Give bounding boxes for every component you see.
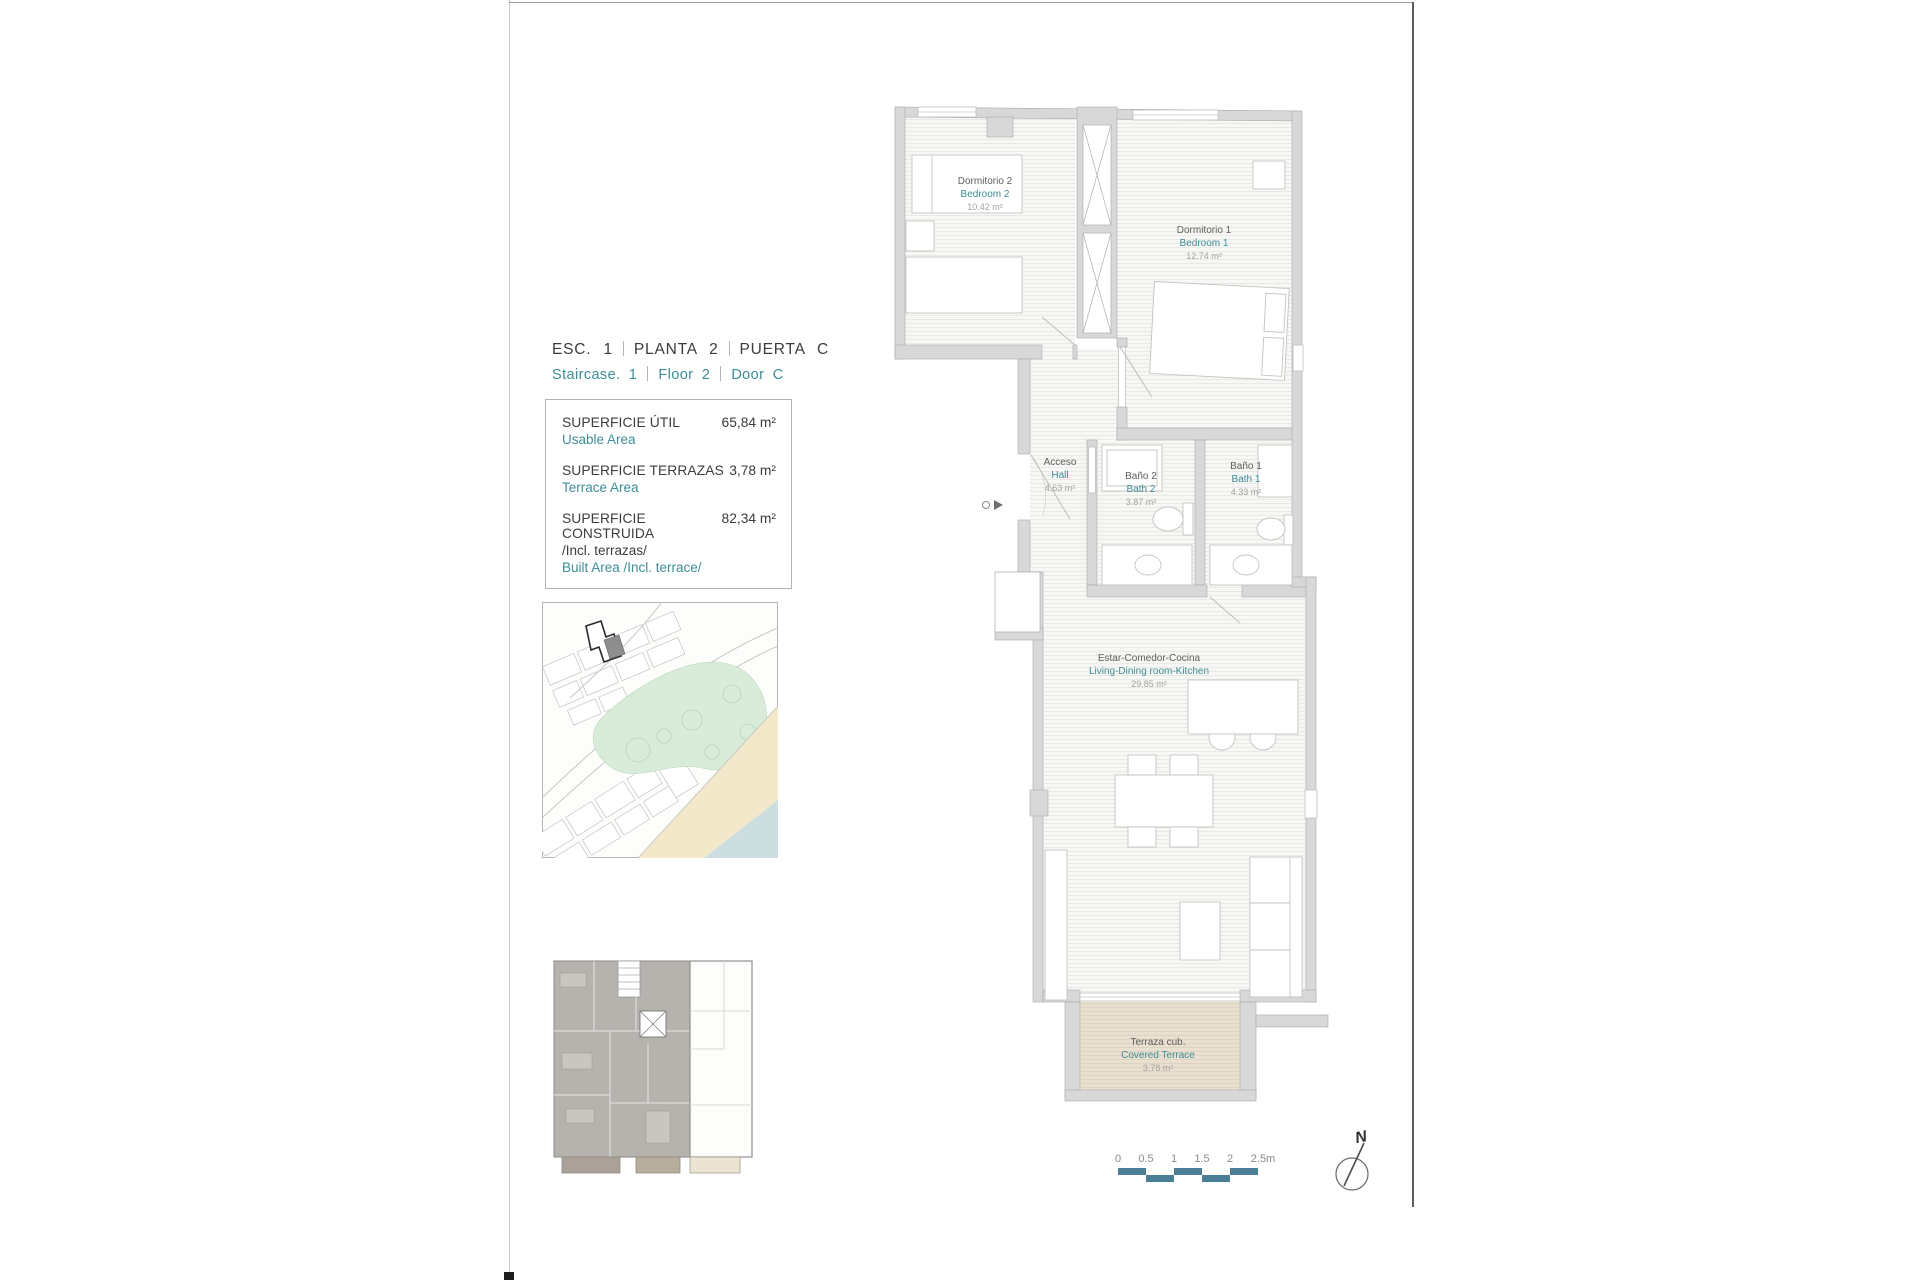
built-area-sublabel: /Incl. terrazas/ (562, 543, 776, 558)
svg-text:Living-Dining room-Kitchen: Living-Dining room-Kitchen (1089, 666, 1209, 677)
dresser (1253, 161, 1285, 189)
svg-text:29.85 m²: 29.85 m² (1131, 679, 1167, 689)
scale-labels: 0 0.5 1 1.5 2 2.5m (1115, 1153, 1275, 1165)
shower (1258, 445, 1292, 497)
divider (623, 341, 624, 356)
title-block: ESC. 1PLANTA 2PUERTA C Staircase. 1Floor… (552, 341, 852, 383)
svg-text:Baño 1: Baño 1 (1230, 461, 1262, 472)
sofa (1250, 857, 1302, 997)
stair-landing (995, 572, 1040, 632)
chair (1128, 755, 1156, 775)
dining-table (1115, 775, 1213, 827)
usable-area-row: SUPERFICIE ÚTIL 65,84 m² Usable Area (562, 415, 776, 447)
page-border-right (1412, 2, 1414, 1207)
terrace-area-label: SUPERFICIE TERRAZAS (562, 463, 724, 478)
built-area-row: SUPERFICIE CONSTRUIDA 82,34 m² /Incl. te… (562, 511, 776, 575)
built-area-label: SUPERFICIE CONSTRUIDA (562, 511, 722, 541)
key-plan-terraces (562, 1157, 740, 1173)
toilet-tank (1183, 503, 1193, 535)
usable-area-value: 65,84 m² (722, 415, 776, 430)
site-location-map (542, 602, 778, 858)
north-label: N (1354, 1128, 1369, 1147)
svg-text:Dormitorio 2: Dormitorio 2 (958, 176, 1013, 187)
toilet (1257, 518, 1285, 540)
chair (1170, 827, 1198, 847)
divider (647, 366, 648, 381)
areas-info-box: SUPERFICIE ÚTIL 65,84 m² Usable Area SUP… (545, 399, 792, 589)
apartment-floor-plan: Dormitorio 2 Bedroom 2 10.42 m² Dormitor… (890, 95, 1335, 1105)
built-area-label-en: Built Area /Incl. terrace/ (562, 560, 776, 575)
terrace-area-row: SUPERFICIE TERRAZAS 3,78 m² Terrace Area (562, 463, 776, 495)
terrace-area-value: 3,78 m² (729, 463, 776, 478)
svg-text:Covered Terrace: Covered Terrace (1121, 1050, 1195, 1061)
entrance-marker (983, 500, 1004, 510)
sink (1135, 555, 1161, 575)
svg-text:Acceso: Acceso (1044, 457, 1077, 468)
sink (1233, 555, 1259, 575)
title-en: Staircase. 1Floor 2Door C (552, 366, 852, 383)
coffee-table (1180, 902, 1220, 960)
svg-text:2: 2 (1227, 1153, 1233, 1165)
svg-text:3.87 m²: 3.87 m² (1126, 497, 1157, 507)
svg-text:0: 0 (1115, 1153, 1121, 1165)
page-corner-mark (504, 1272, 514, 1280)
bed (1150, 282, 1290, 381)
svg-text:1: 1 (1171, 1153, 1177, 1165)
usable-area-label: SUPERFICIE ÚTIL (562, 415, 680, 430)
chair (1170, 755, 1198, 775)
svg-text:Terraza cub.: Terraza cub. (1130, 1037, 1185, 1048)
svg-text:4.33 m²: 4.33 m² (1231, 487, 1262, 497)
nightstand (906, 221, 934, 251)
page-border-top (509, 2, 1414, 3)
floor-plan-sheet: ESC. 1PLANTA 2PUERTA C Staircase. 1Floor… (0, 0, 1920, 1280)
chair (1128, 827, 1156, 847)
svg-text:Bath 2: Bath 2 (1127, 484, 1156, 495)
usable-area-label-en: Usable Area (562, 432, 776, 447)
scale-bar: 0 0.5 1 1.5 2 2.5m (1105, 1148, 1305, 1192)
key-plan-highlighted-unit (690, 961, 752, 1157)
north-arrow: N (1322, 1128, 1386, 1200)
page-border-left (509, 0, 510, 1280)
svg-text:Estar-Comedor-Cocina: Estar-Comedor-Cocina (1098, 653, 1201, 664)
svg-text:3.78 m²: 3.78 m² (1143, 1063, 1174, 1073)
svg-text:0.5: 0.5 (1138, 1153, 1153, 1165)
terrace-area-label-en: Terrace Area (562, 480, 776, 495)
sideboard (1045, 850, 1067, 1000)
built-area-value: 82,34 m² (722, 511, 776, 526)
svg-text:Dormitorio 1: Dormitorio 1 (1177, 225, 1232, 236)
bed (906, 257, 1022, 313)
svg-text:2.5m: 2.5m (1251, 1153, 1275, 1165)
compass-needle (1344, 1143, 1364, 1186)
svg-text:1.5: 1.5 (1194, 1153, 1209, 1165)
divider (729, 341, 730, 356)
toilet (1153, 507, 1183, 531)
scale-segments (1118, 1168, 1258, 1182)
title-es: ESC. 1PLANTA 2PUERTA C (552, 341, 852, 359)
svg-text:Bath 1: Bath 1 (1232, 474, 1261, 485)
svg-text:Hall: Hall (1051, 470, 1068, 481)
svg-text:Bedroom 2: Bedroom 2 (961, 189, 1010, 200)
divider (720, 366, 721, 381)
svg-text:Baño 2: Baño 2 (1125, 471, 1157, 482)
bath1-label: Baño 1 Bath 1 4.33 m² (1230, 461, 1262, 497)
svg-text:10.42 m²: 10.42 m² (967, 202, 1003, 212)
bath2-label: Baño 2 Bath 2 3.87 m² (1125, 471, 1157, 507)
key-plan (548, 953, 763, 1179)
compass-circle (1336, 1158, 1368, 1190)
svg-text:12.74 m²: 12.74 m² (1186, 251, 1222, 261)
svg-text:Bedroom 1: Bedroom 1 (1180, 238, 1229, 249)
svg-text:4.63 m²: 4.63 m² (1045, 483, 1076, 493)
kitchen-island (1188, 680, 1298, 734)
